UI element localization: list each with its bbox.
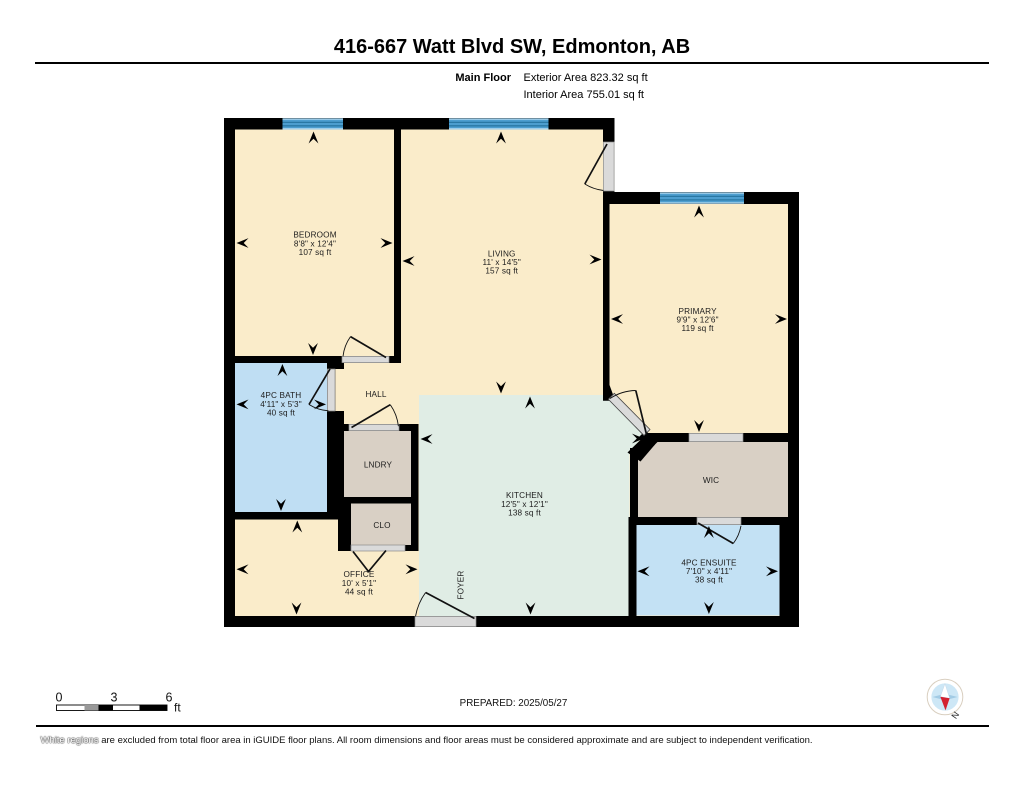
svg-text:107 sq ft: 107 sq ft [299, 248, 332, 257]
svg-text:40 sq ft: 40 sq ft [267, 408, 296, 417]
svg-text:FOYER: FOYER [457, 571, 466, 600]
svg-text:HALL: HALL [365, 390, 386, 399]
svg-text:N: N [949, 710, 961, 721]
svg-text:WIC: WIC [703, 476, 719, 485]
svg-text:38 sq ft: 38 sq ft [695, 576, 724, 585]
svg-text:CLO: CLO [373, 521, 390, 530]
svg-text:119 sq ft: 119 sq ft [682, 324, 715, 333]
svg-text:157 sq ft: 157 sq ft [485, 267, 518, 276]
svg-text:LNDRY: LNDRY [364, 460, 393, 469]
svg-text:44 sq ft: 44 sq ft [345, 587, 374, 596]
svg-text:138 sq ft: 138 sq ft [508, 508, 541, 517]
